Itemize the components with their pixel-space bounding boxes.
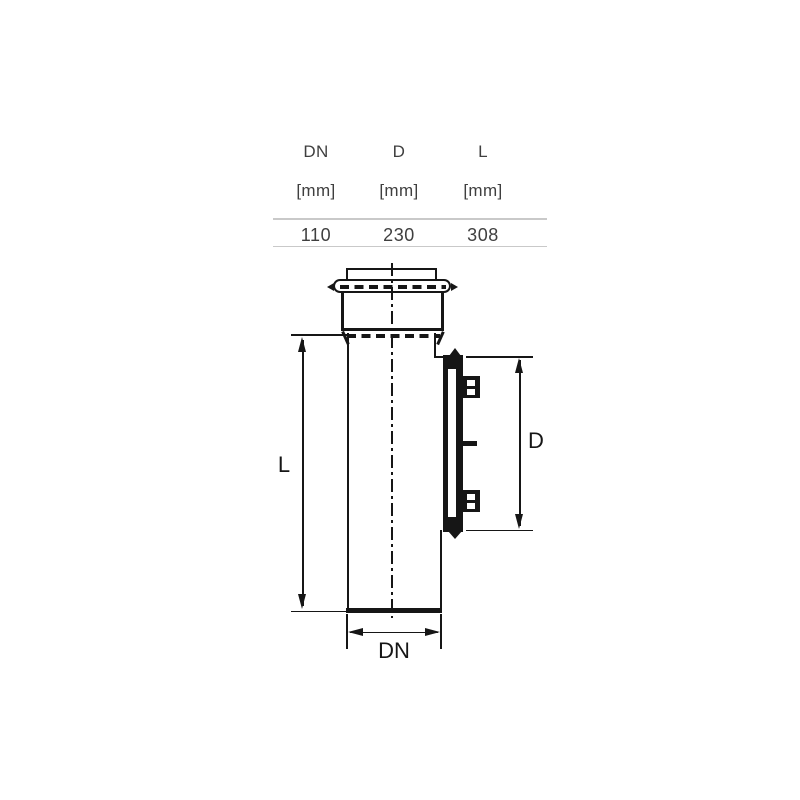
table-value-d: 230 (357, 225, 441, 246)
table-value-l: 308 (441, 225, 525, 246)
table-unit-d: [mm] (357, 181, 441, 201)
page: DN D L [mm] [mm] [mm] 110 230 308 (0, 0, 800, 800)
cover-top-tip (449, 348, 461, 356)
cover-bottom-tip (448, 531, 462, 539)
table-value-dn: 110 (274, 225, 358, 246)
dim-l-ext-bottom (291, 611, 348, 613)
dim-l-line (302, 340, 304, 606)
dim-d-arrow-bottom (515, 514, 523, 529)
pipe-bottom-edge (346, 608, 442, 613)
cover-clip-top-hole-1 (467, 380, 475, 386)
table-header-dn: DN (274, 142, 358, 162)
dim-dn-arrow-left (348, 628, 363, 636)
dim-d-ext-bottom (466, 530, 533, 532)
dim-l-arrow-bottom (298, 594, 306, 609)
cover-clip-top-hole-2 (467, 389, 475, 395)
dim-d-arrow-top (515, 358, 523, 373)
table-unit-l: [mm] (441, 181, 525, 201)
cover-clip-bottom-hole-2 (467, 503, 475, 509)
table-header-l: L (441, 142, 525, 162)
table-unit-dn: [mm] (274, 181, 358, 201)
pipe-right-edge-upper (434, 333, 436, 358)
dim-d-line (519, 360, 521, 526)
gasket-left-tip (327, 283, 334, 291)
dim-label-d: D (524, 428, 548, 454)
dim-label-l: L (272, 452, 296, 478)
dim-l-arrow-top (298, 337, 306, 352)
dim-label-dn: DN (369, 638, 419, 664)
gasket-seal-dashes-top (340, 285, 446, 289)
cover-mid-tab (458, 441, 477, 446)
dim-dn-ext-right (440, 614, 442, 649)
access-cover-slot (448, 369, 456, 517)
table-rule-top (273, 218, 547, 220)
gasket-right-tip (451, 283, 458, 291)
dim-dn-arrow-right (425, 628, 440, 636)
pipe-left-edge (347, 333, 349, 612)
pipe-right-edge-lower (440, 530, 442, 610)
table-header-d: D (357, 142, 441, 162)
cover-clip-bottom-hole-1 (467, 494, 475, 500)
pipe-centerline (391, 263, 393, 618)
table-rule-bottom (273, 246, 547, 248)
gasket-seal-dashes-bottom (347, 334, 440, 338)
